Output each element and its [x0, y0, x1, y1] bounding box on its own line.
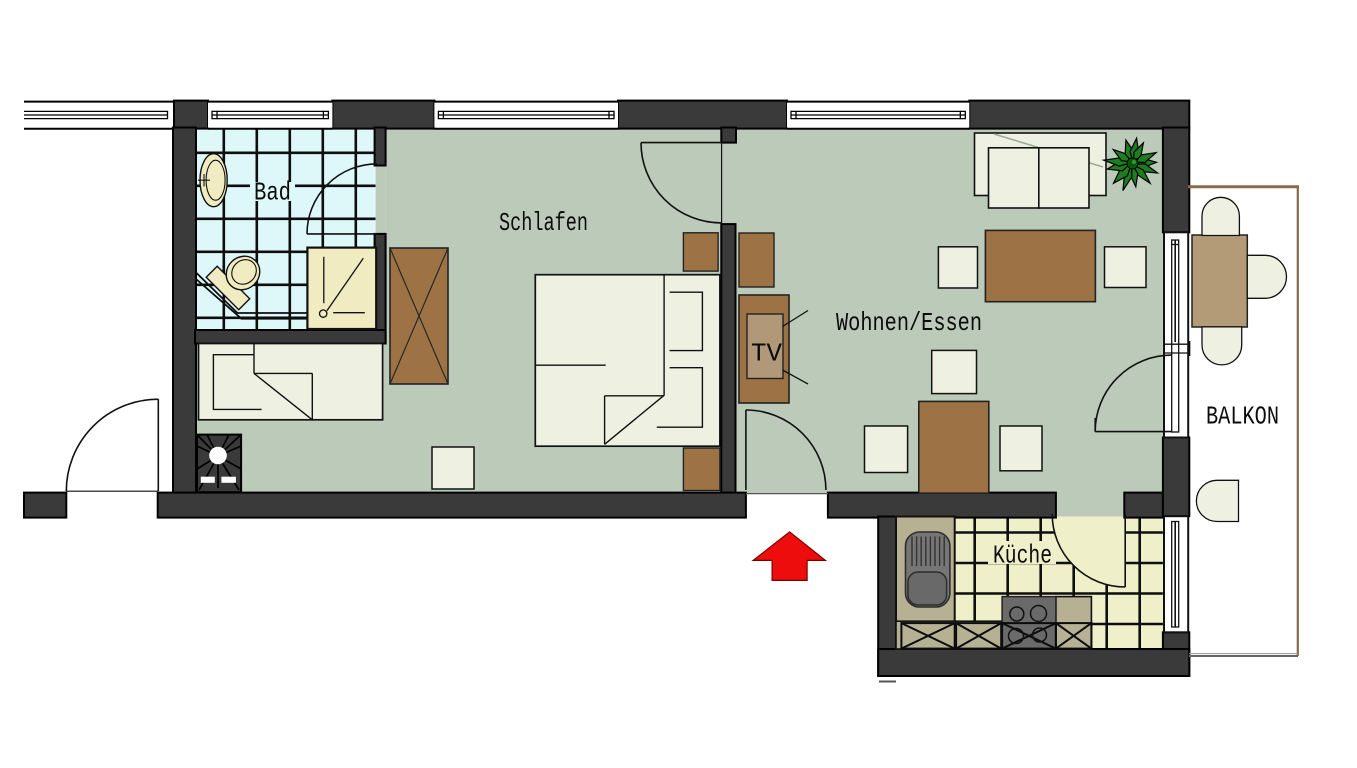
svg-text:TV: TV [751, 339, 782, 369]
svg-text:Wohnen/Essen: Wohnen/Essen [836, 308, 982, 338]
svg-text:Schlafen: Schlafen [499, 208, 588, 238]
svg-text:BALKON: BALKON [1206, 402, 1279, 432]
svg-text:Küche: Küche [993, 541, 1052, 571]
svg-text:Bad: Bad [254, 178, 291, 208]
